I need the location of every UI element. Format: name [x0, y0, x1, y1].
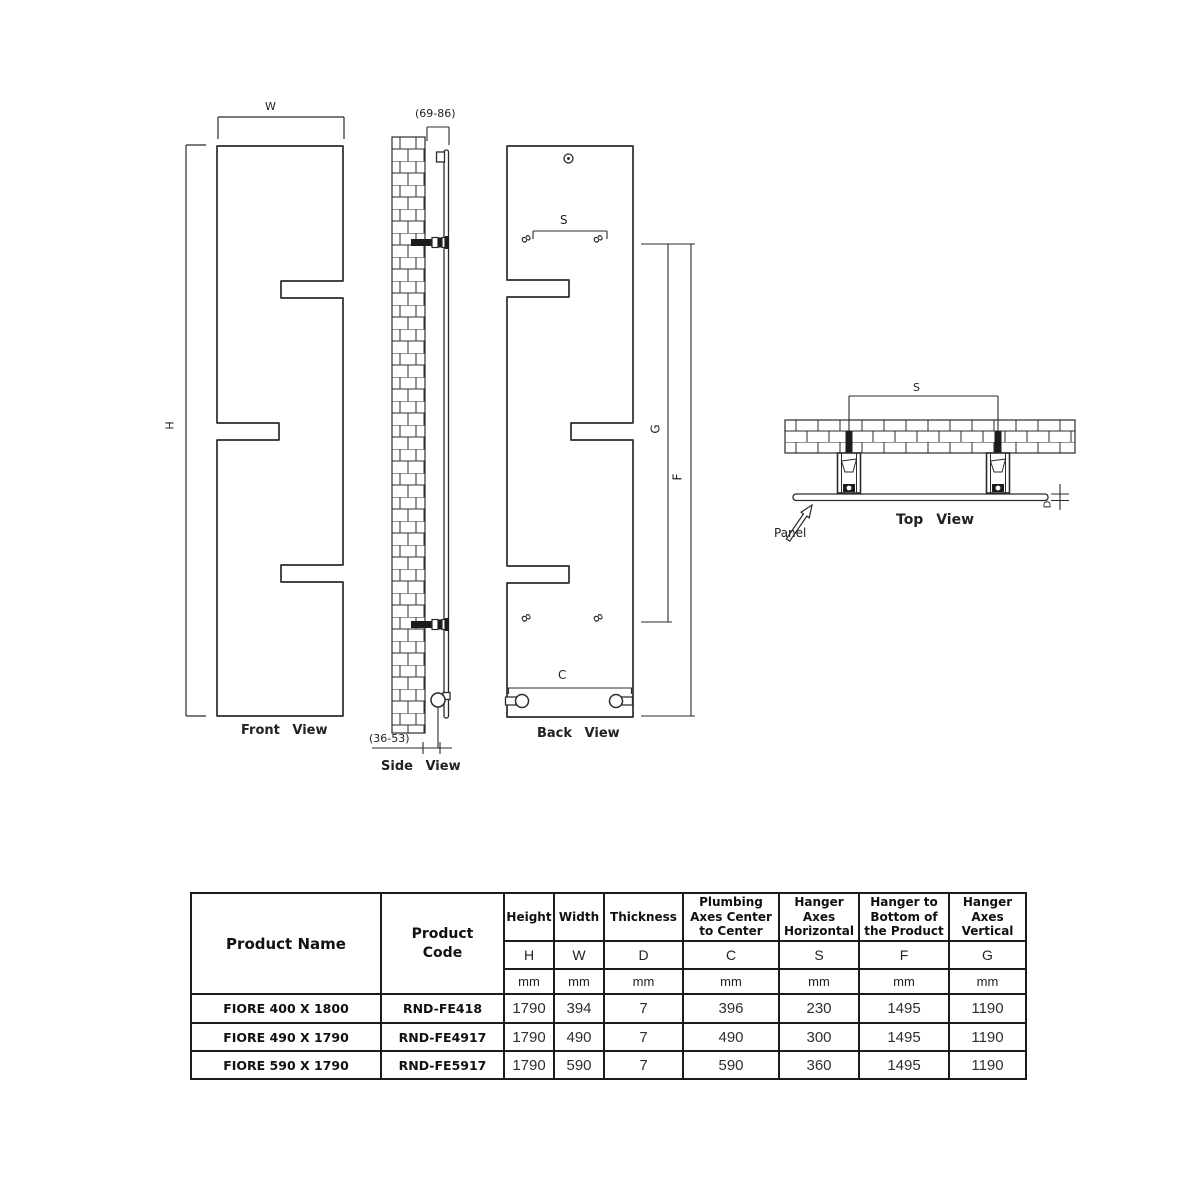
- value-cell: 7: [604, 994, 683, 1023]
- col-header-product-code: Product Code: [381, 893, 504, 994]
- value-cell: 396: [683, 994, 779, 1023]
- side-top-dim-label: (69-86): [415, 107, 456, 120]
- value-cell: 394: [554, 994, 604, 1023]
- spec-table: Product Name Product Code Height Width T…: [190, 892, 1027, 1080]
- value-cell: 1495: [859, 1023, 949, 1051]
- front-height-dim-label: H: [164, 421, 177, 429]
- back-view-drawing: [506, 146, 696, 717]
- letter-S: S: [779, 941, 859, 969]
- product-code-cell: RND-FE4917: [381, 1023, 504, 1051]
- back-s-dim-label: S: [560, 213, 568, 227]
- letter-G: G: [949, 941, 1026, 969]
- value-cell: 590: [554, 1051, 604, 1079]
- unit-mm: mm: [859, 969, 949, 994]
- value-cell: 490: [554, 1023, 604, 1051]
- unit-mm: mm: [949, 969, 1026, 994]
- letter-H: H: [504, 941, 554, 969]
- unit-mm: mm: [683, 969, 779, 994]
- value-cell: 1190: [949, 1023, 1026, 1051]
- value-cell: 1495: [859, 1051, 949, 1079]
- product-name-cell: FIORE 490 X 1790: [191, 1023, 381, 1051]
- back-g-dim-label: G: [649, 424, 663, 433]
- table-row: FIORE 490 X 1790 RND-FE4917 1790 490 7 4…: [191, 1023, 1026, 1051]
- letter-C: C: [683, 941, 779, 969]
- back-c-dim-label: C: [558, 668, 566, 682]
- value-cell: 1190: [949, 1051, 1026, 1079]
- letter-W: W: [554, 941, 604, 969]
- back-view-title: Back View: [537, 726, 620, 741]
- front-view-drawing: [186, 117, 344, 716]
- col-header-hanger-vertical: Hanger Axes Vertical: [949, 893, 1026, 941]
- side-bottom-dim-label: (36-53): [369, 732, 410, 745]
- front-view-title: Front View: [241, 723, 328, 738]
- value-cell: 490: [683, 1023, 779, 1051]
- back-f-dim-label: F: [670, 474, 684, 481]
- value-cell: 360: [779, 1051, 859, 1079]
- value-cell: 1790: [504, 994, 554, 1023]
- top-s-dim-label: S: [913, 381, 920, 394]
- side-view-drawing: [372, 127, 452, 754]
- top-d-dim-label: D: [1042, 501, 1053, 509]
- product-code-cell: RND-FE5917: [381, 1051, 504, 1079]
- side-view-title: Side View: [381, 759, 461, 774]
- table-row: FIORE 590 X 1790 RND-FE5917 1790 590 7 5…: [191, 1051, 1026, 1079]
- value-cell: 590: [683, 1051, 779, 1079]
- col-header-hanger-horizontal: Hanger Axes Horizontal: [779, 893, 859, 941]
- spec-sheet: W H Front View (69-86) (36-53) Side View…: [0, 0, 1200, 1200]
- top-view-title: Top View: [896, 512, 974, 528]
- col-header-hanger-bottom: Hanger to Bottom of the Product: [859, 893, 949, 941]
- value-cell: 7: [604, 1023, 683, 1051]
- col-header-plumbing-axes: Plumbing Axes Center to Center: [683, 893, 779, 941]
- letter-F: F: [859, 941, 949, 969]
- col-header-height: Height: [504, 893, 554, 941]
- letter-D: D: [604, 941, 683, 969]
- table-row: FIORE 400 X 1800 RND-FE418 1790 394 7 39…: [191, 994, 1026, 1023]
- value-cell: 7: [604, 1051, 683, 1079]
- panel-label: Panel: [774, 526, 806, 540]
- unit-mm: mm: [504, 969, 554, 994]
- value-cell: 1790: [504, 1023, 554, 1051]
- unit-mm: mm: [554, 969, 604, 994]
- unit-mm: mm: [604, 969, 683, 994]
- product-name-cell: FIORE 590 X 1790: [191, 1051, 381, 1079]
- col-header-width: Width: [554, 893, 604, 941]
- col-header-product-name: Product Name: [191, 893, 381, 994]
- value-cell: 1790: [504, 1051, 554, 1079]
- unit-mm: mm: [779, 969, 859, 994]
- value-cell: 1495: [859, 994, 949, 1023]
- product-name-cell: FIORE 400 X 1800: [191, 994, 381, 1023]
- col-header-thickness: Thickness: [604, 893, 683, 941]
- value-cell: 300: [779, 1023, 859, 1051]
- value-cell: 230: [779, 994, 859, 1023]
- product-code-cell: RND-FE418: [381, 994, 504, 1023]
- front-width-dim-label: W: [265, 100, 276, 113]
- value-cell: 1190: [949, 994, 1026, 1023]
